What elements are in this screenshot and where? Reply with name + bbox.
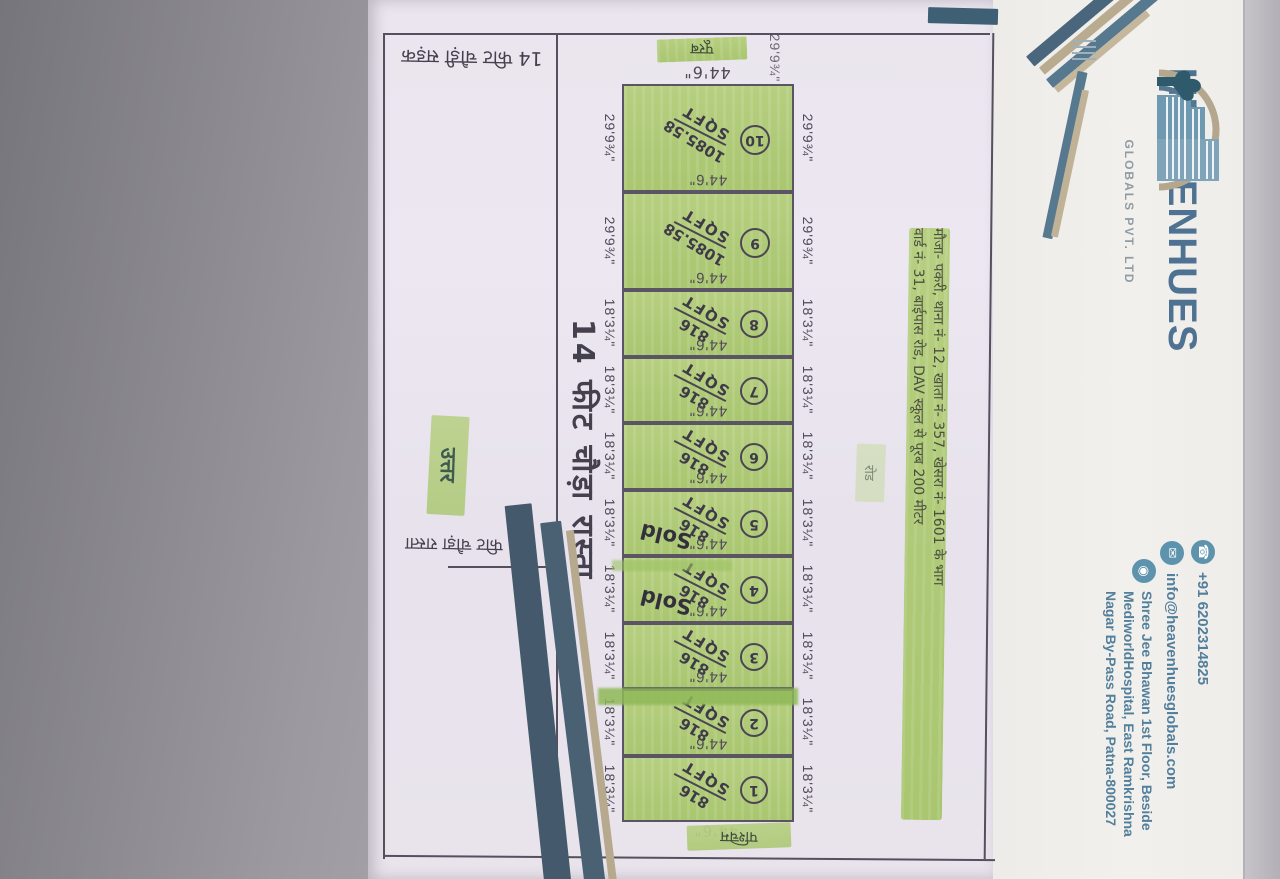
plot-1-number: 1 (740, 776, 768, 804)
plot-5-number: 5 (740, 510, 768, 538)
logo-graphic (1145, 55, 1255, 205)
company-logo (1145, 55, 1255, 205)
plot-10-right-dim: 29'9¾" (798, 98, 818, 178)
inner-corner-line (448, 566, 558, 568)
green-smear-band-2 (612, 560, 732, 571)
plot-1-right-dim: 18'3¼" (798, 749, 818, 829)
road-tag: रोड (855, 443, 885, 503)
plot-10-width: 44'6" (664, 169, 752, 191)
top-road-note: 14 फीट चौड़ी सड़क (382, 38, 563, 77)
plot-6-width: 44'6" (664, 467, 752, 489)
photo-of-site-plan-document: 14 फीट चौड़ी सड़क 14 फीट चौड़ा रास्ता 14… (0, 0, 1280, 879)
record-strip-text: मौजा- पकरी, थाना नं- 12, खाता नं- 357, ख… (906, 228, 948, 820)
address-line-3: Nagar By-Pass Road, Patna-800027 (1102, 591, 1120, 837)
stripe-teal-tip (928, 7, 998, 25)
address-line-2: MediworldHospital, East Ramkrishna (1120, 591, 1138, 837)
email-address: info@heavenhuesglobals.com (1164, 573, 1181, 789)
plot-9-number: 9 (740, 228, 770, 258)
west-tag: पश्चिम (690, 824, 788, 850)
brand-rule-lines (1072, 40, 1096, 62)
plot-10-number: 10 (740, 125, 770, 155)
boundary-left (383, 33, 385, 859)
road-left-line (556, 33, 558, 858)
plot-10-left-dim: 29'9¾" (600, 98, 620, 178)
plot-3-number: 3 (740, 643, 768, 671)
green-smear-band (598, 688, 798, 705)
plot-7-width: 44'6" (664, 400, 752, 422)
east-tag: पूरब (660, 37, 744, 61)
brand-subtitle: GLOBALS PVT. LTD (1120, 126, 1138, 298)
plot-9-right-dim: 29'9¾" (798, 201, 818, 281)
boundary-top (383, 33, 990, 35)
plot-7-number: 7 (740, 377, 768, 405)
north-tag: उत्तर (426, 414, 469, 515)
top-width-label: 44'6" (663, 59, 751, 86)
address-line-1: Shree Jee Bhawan 1st Floor, Beside (1138, 591, 1156, 837)
plot-3-width: 44'6" (664, 666, 752, 688)
contact-email-row: ✉ info@heavenhuesglobals.com (1159, 541, 1185, 803)
plot-8-width: 44'6" (664, 334, 752, 356)
phone-number: +91 6202314825 (1195, 572, 1212, 685)
plot-2-width: 44'6" (664, 733, 752, 755)
contact-phone-row: ☎ +91 6202314825 (1190, 540, 1216, 730)
record-line-1: मौजा- पकरी, थाना नं- 12, खाता नं- 357, ख… (928, 228, 948, 820)
record-line-2: वार्ड नं- 31, बाईपास रोड, DAV स्कूल से प… (908, 228, 928, 820)
contact-address-row: ◉ Shree Jee Bhawan 1st Floor, Beside Med… (1098, 559, 1156, 841)
email-icon: ✉ (1160, 541, 1184, 565)
location-icon: ◉ (1132, 559, 1156, 583)
plot-9-left-dim: 29'9¾" (600, 201, 620, 281)
phone-icon: ☎ (1191, 540, 1215, 564)
plot-9-width: 44'6" (664, 267, 752, 289)
